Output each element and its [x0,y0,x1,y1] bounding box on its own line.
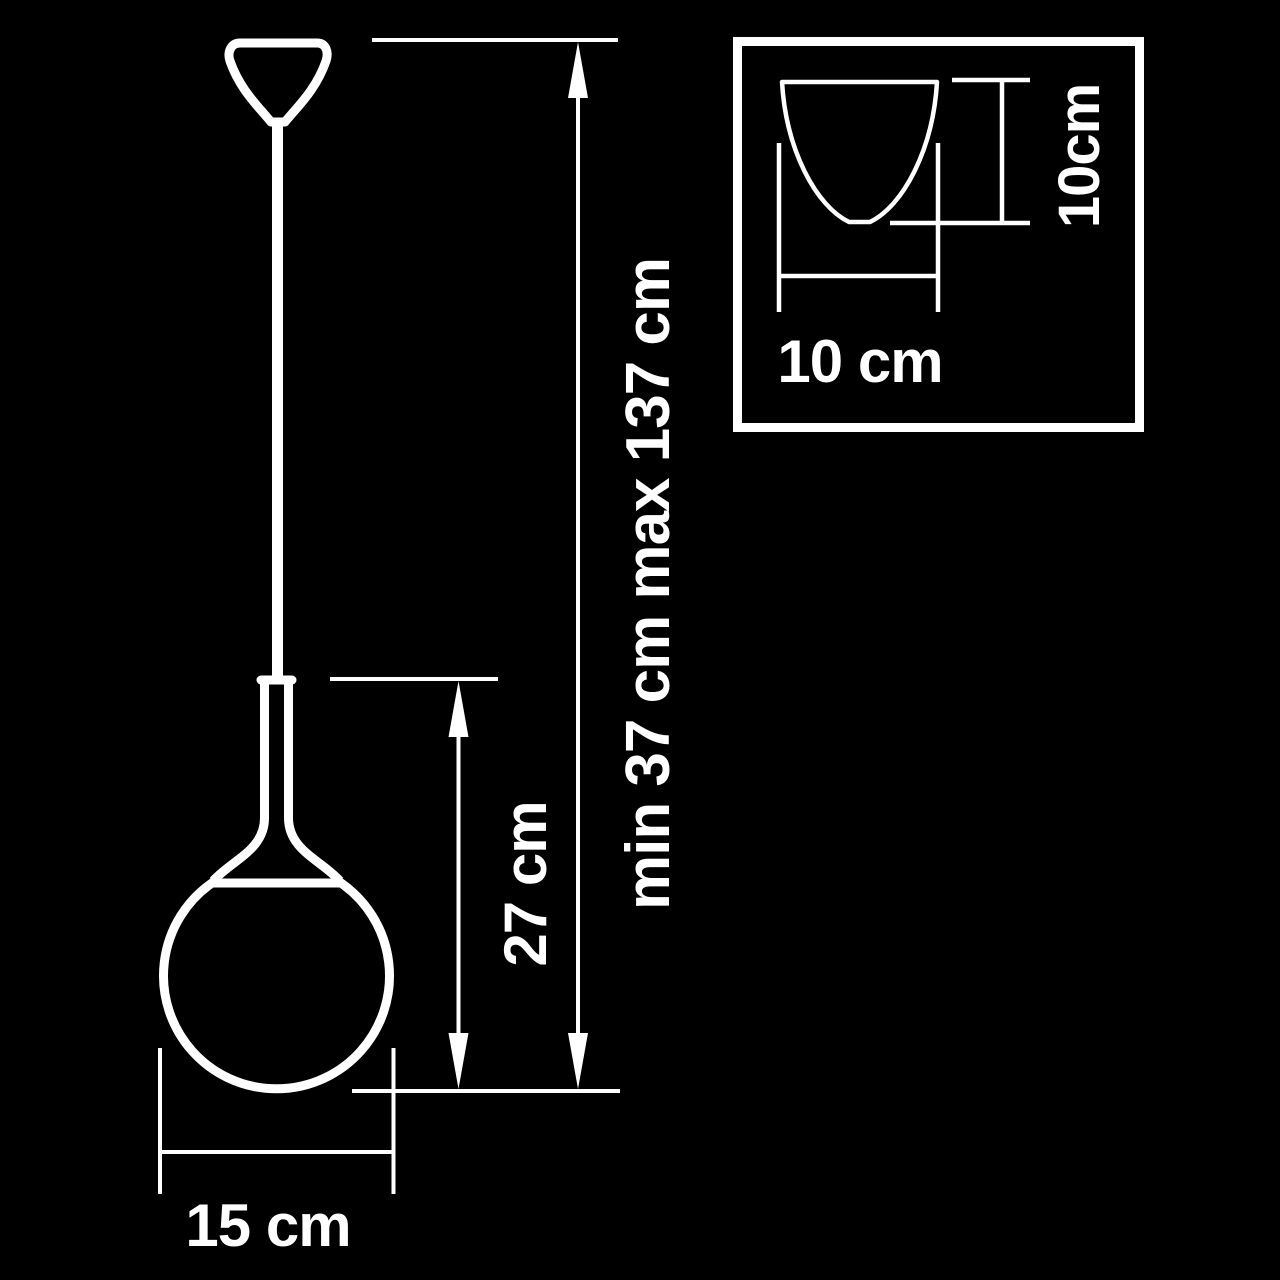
arrow-down-icon [568,1033,588,1089]
shade-diameter-label: 15 cm [185,1196,350,1256]
dimension-lines [160,40,620,1194]
lamp-neck-left-wall [213,680,265,881]
canopy-outline [229,43,327,122]
total-height-label: min 37 cm max 137 cm [618,258,680,910]
arrow-up-icon [568,42,588,98]
arrow-up-icon [449,681,469,737]
pendant-lamp-dimension-diagram: min 37 cm max 137 cm 27 cm 15 cm 10 cm 1… [0,0,1280,1280]
shade-height-label: 27 cm [496,801,556,966]
sconce-cup-outline [782,82,937,222]
arrow-down-icon [449,1033,469,1089]
sconce-width-label: 10 cm [777,332,942,392]
pendant-lamp-outline [163,43,389,1089]
sconce-height-label: 10cm [1051,84,1109,228]
lamp-globe-outline [163,883,389,1089]
lamp-neck-right-wall [289,680,341,881]
